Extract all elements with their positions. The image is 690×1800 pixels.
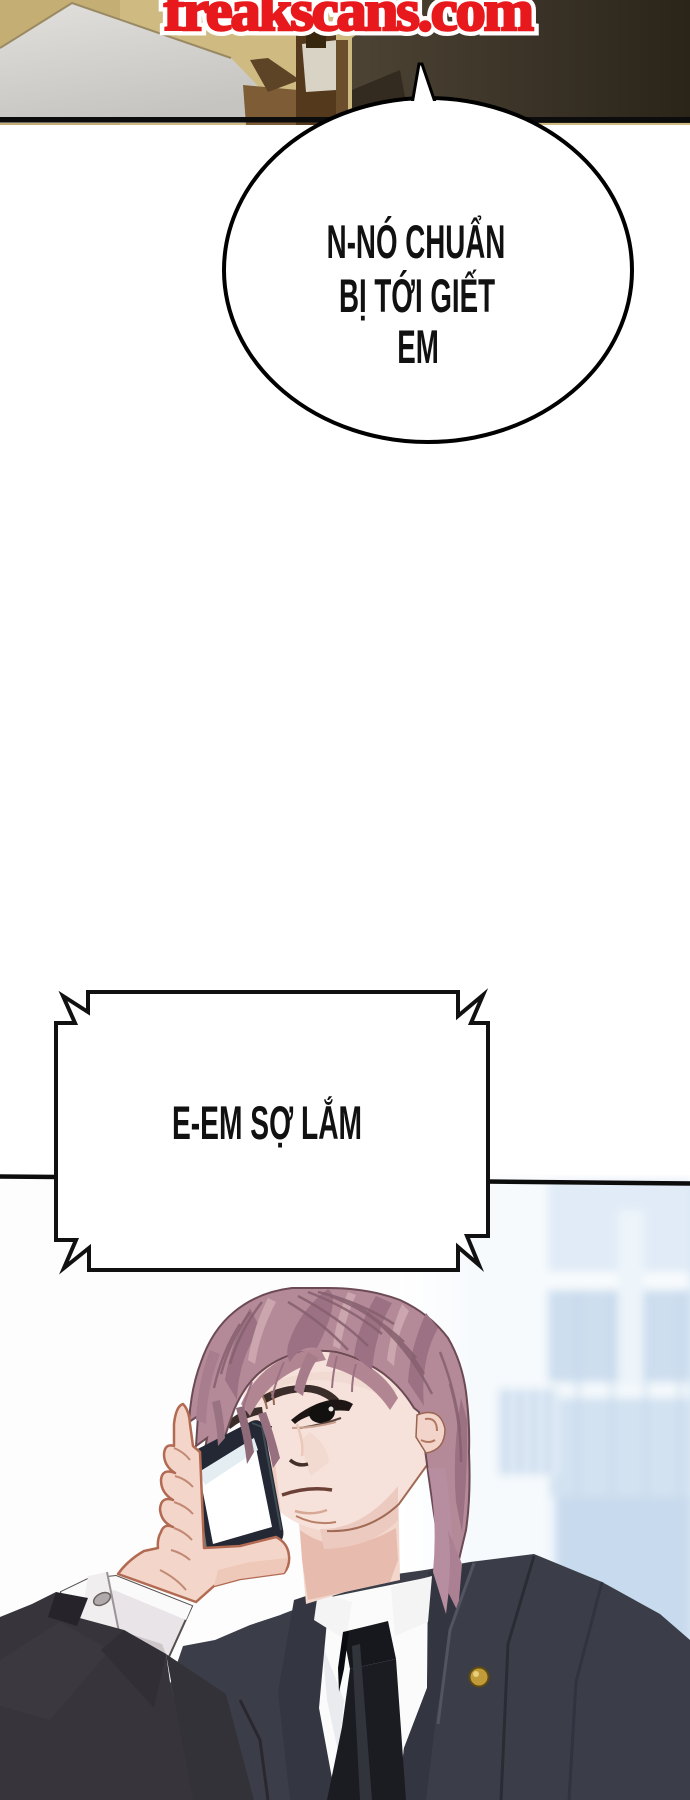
svg-text:freakscans.com: freakscans.com (164, 0, 534, 43)
svg-text:EM: EM (397, 322, 439, 374)
svg-text:BỊ TỚI GIẾT: BỊ TỚI GIẾT (339, 269, 495, 323)
svg-text:E-EM SỢ LẮM: E-EM SỢ LẮM (172, 1097, 362, 1150)
svg-text:N-NÓ CHUẨN: N-NÓ CHUẨN (327, 214, 506, 269)
